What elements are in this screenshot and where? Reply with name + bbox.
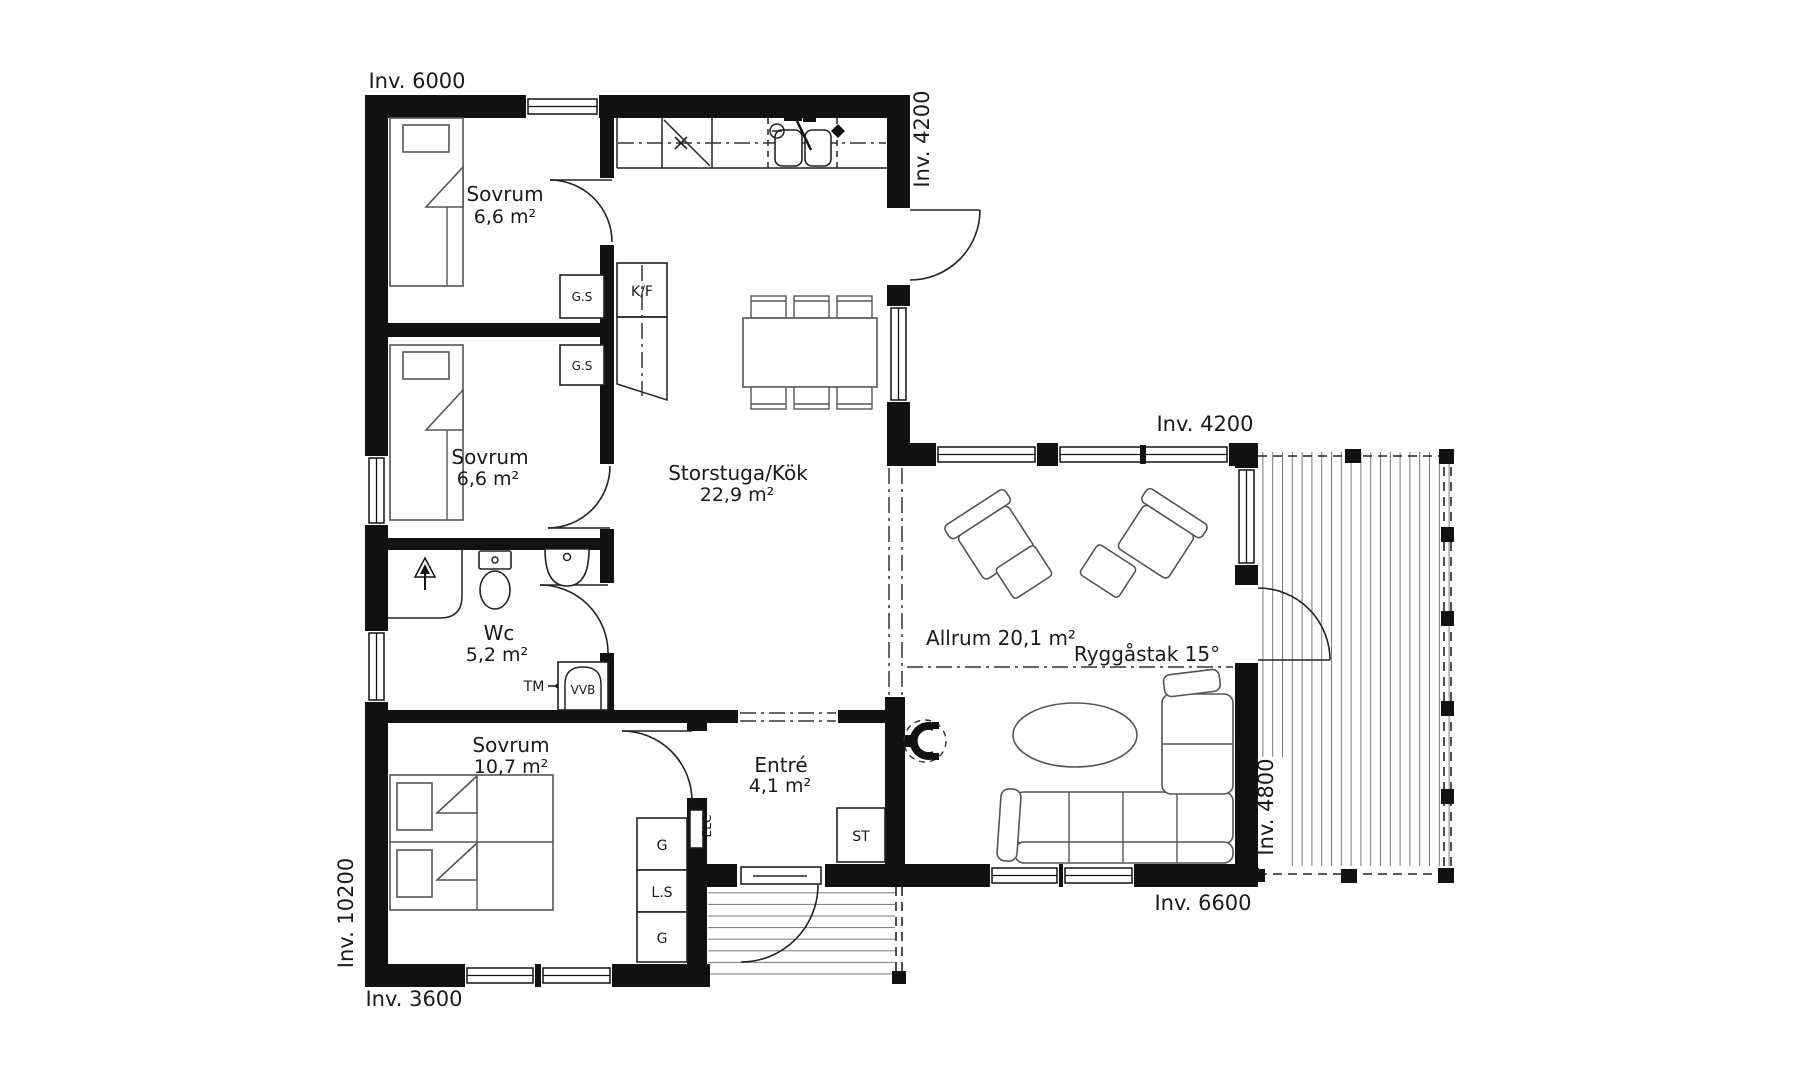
dining-table bbox=[743, 318, 877, 387]
wall-segment bbox=[1035, 443, 1060, 466]
wall-segment bbox=[365, 523, 388, 633]
dining-chairs-top bbox=[751, 296, 872, 318]
wardrobe-g-2-label: G bbox=[657, 931, 668, 947]
wall-segment bbox=[365, 964, 467, 987]
electrical-cabinet-label: ELC bbox=[700, 815, 714, 838]
wall-segment bbox=[365, 700, 388, 987]
room-label-sovrum2: Sovrum bbox=[451, 445, 528, 469]
wall-segment bbox=[388, 710, 738, 723]
wall-segment bbox=[365, 95, 388, 458]
room-area-storstuga: 22,9 m² bbox=[700, 484, 774, 506]
dim-top: Inv. 6000 bbox=[368, 69, 465, 93]
bedroom3-furniture bbox=[390, 775, 553, 910]
wall-segment bbox=[388, 323, 607, 337]
window-allrum-south-2 bbox=[1063, 862, 1134, 889]
washing-machine-label: TM bbox=[523, 679, 545, 695]
window-sovrum2-left bbox=[363, 456, 390, 525]
porch-post bbox=[892, 971, 906, 984]
wall-segment bbox=[1235, 563, 1258, 585]
wall-segment bbox=[887, 95, 910, 208]
wall-segment bbox=[687, 723, 707, 731]
deck-post bbox=[1439, 449, 1454, 464]
deck-post bbox=[1341, 869, 1357, 883]
room-label-allrum: Allrum 20,1 m² bbox=[926, 626, 1076, 650]
room-label-sovrum1: Sovrum bbox=[466, 182, 543, 206]
deck-post bbox=[1441, 611, 1454, 626]
wall-segment bbox=[825, 864, 905, 887]
ridge-annotation: Ryggåstak 15° bbox=[1074, 642, 1220, 666]
window-sovrum3-bottom-2 bbox=[541, 962, 612, 989]
window-storstuga-east bbox=[885, 306, 912, 402]
wall-segment bbox=[1132, 864, 1258, 887]
deck-post bbox=[1345, 449, 1361, 463]
dining-set bbox=[743, 296, 877, 409]
wall-segment bbox=[600, 118, 614, 178]
faucet-icon bbox=[784, 114, 802, 121]
window-wc-left bbox=[363, 631, 390, 702]
dim-northeast: Inv. 4200 bbox=[910, 90, 934, 187]
wall-segment bbox=[600, 529, 614, 583]
entrance-porch bbox=[708, 887, 906, 984]
opening-storstuga-entre bbox=[738, 708, 838, 725]
pillow bbox=[397, 783, 432, 830]
water-heater-label: VVB bbox=[571, 683, 596, 697]
room-area-sovrum1: 6,6 m² bbox=[474, 206, 536, 228]
wall-segment bbox=[707, 864, 737, 887]
window-allrum-north-1 bbox=[936, 441, 1037, 468]
wardrobe-g-1-label: G bbox=[657, 838, 668, 854]
room-area-sovrum2: 6,6 m² bbox=[457, 468, 519, 490]
wall-segment bbox=[887, 285, 910, 308]
wall-segment bbox=[365, 95, 528, 118]
bedroom2-furniture bbox=[390, 345, 463, 520]
opening-storstuga-allrum bbox=[885, 466, 907, 697]
wall-segment bbox=[887, 443, 938, 466]
floor-plan-page: K/F VVB TM bbox=[0, 0, 1800, 1082]
pillow bbox=[403, 125, 449, 152]
room-label-sovrum3: Sovrum bbox=[472, 733, 549, 757]
window-sovrum3-bottom-1 bbox=[465, 962, 535, 989]
room-area-entre: 4,1 m² bbox=[749, 775, 811, 797]
deck-post bbox=[1258, 868, 1265, 882]
dim-bottom-right: Inv. 6600 bbox=[1154, 891, 1251, 915]
room-label-entre: Entré bbox=[754, 753, 807, 777]
pillow bbox=[403, 352, 449, 379]
dim-left: Inv. 10200 bbox=[334, 858, 358, 968]
wardrobe-ls-label: L.S bbox=[651, 885, 672, 901]
deck-post bbox=[1438, 868, 1454, 883]
bedroom1-furniture bbox=[390, 118, 463, 286]
deck-post bbox=[1441, 527, 1454, 542]
floor-plan-drawing: K/F VVB TM bbox=[0, 0, 1800, 1082]
wall-segment bbox=[1235, 443, 1258, 470]
window-sovrum1-top bbox=[526, 93, 599, 120]
closet-st-label: ST bbox=[852, 829, 870, 845]
wall-segment bbox=[838, 710, 887, 723]
wall-segment bbox=[885, 697, 905, 864]
room-area-sovrum3: 10,7 m² bbox=[474, 756, 548, 778]
dim-allrum-top: Inv. 4200 bbox=[1156, 412, 1253, 436]
room-label-storstuga: Storstuga/Kök bbox=[668, 461, 808, 485]
wall-segment bbox=[597, 95, 910, 118]
deck-post bbox=[1441, 701, 1454, 716]
deck-post bbox=[1441, 789, 1454, 804]
dim-bottom-left: Inv. 3600 bbox=[365, 987, 462, 1011]
coffee-table bbox=[1013, 703, 1137, 767]
window-allrum-south-1 bbox=[990, 862, 1059, 889]
dim-deck: Inv. 4800 bbox=[1254, 758, 1278, 855]
pillow bbox=[397, 850, 432, 897]
dining-chairs-bottom bbox=[751, 387, 872, 409]
window-allrum-north-2 bbox=[1058, 441, 1229, 468]
room-area-wc: 5,2 m² bbox=[466, 644, 528, 666]
window-allrum-east bbox=[1233, 468, 1260, 565]
wardrobe-gs-1-label: G.S bbox=[572, 290, 593, 304]
wardrobe-gs-2-label: G.S bbox=[572, 359, 593, 373]
toilet-icon bbox=[479, 551, 511, 609]
room-label-wc: Wc bbox=[484, 621, 515, 645]
wall-segment bbox=[905, 864, 992, 887]
